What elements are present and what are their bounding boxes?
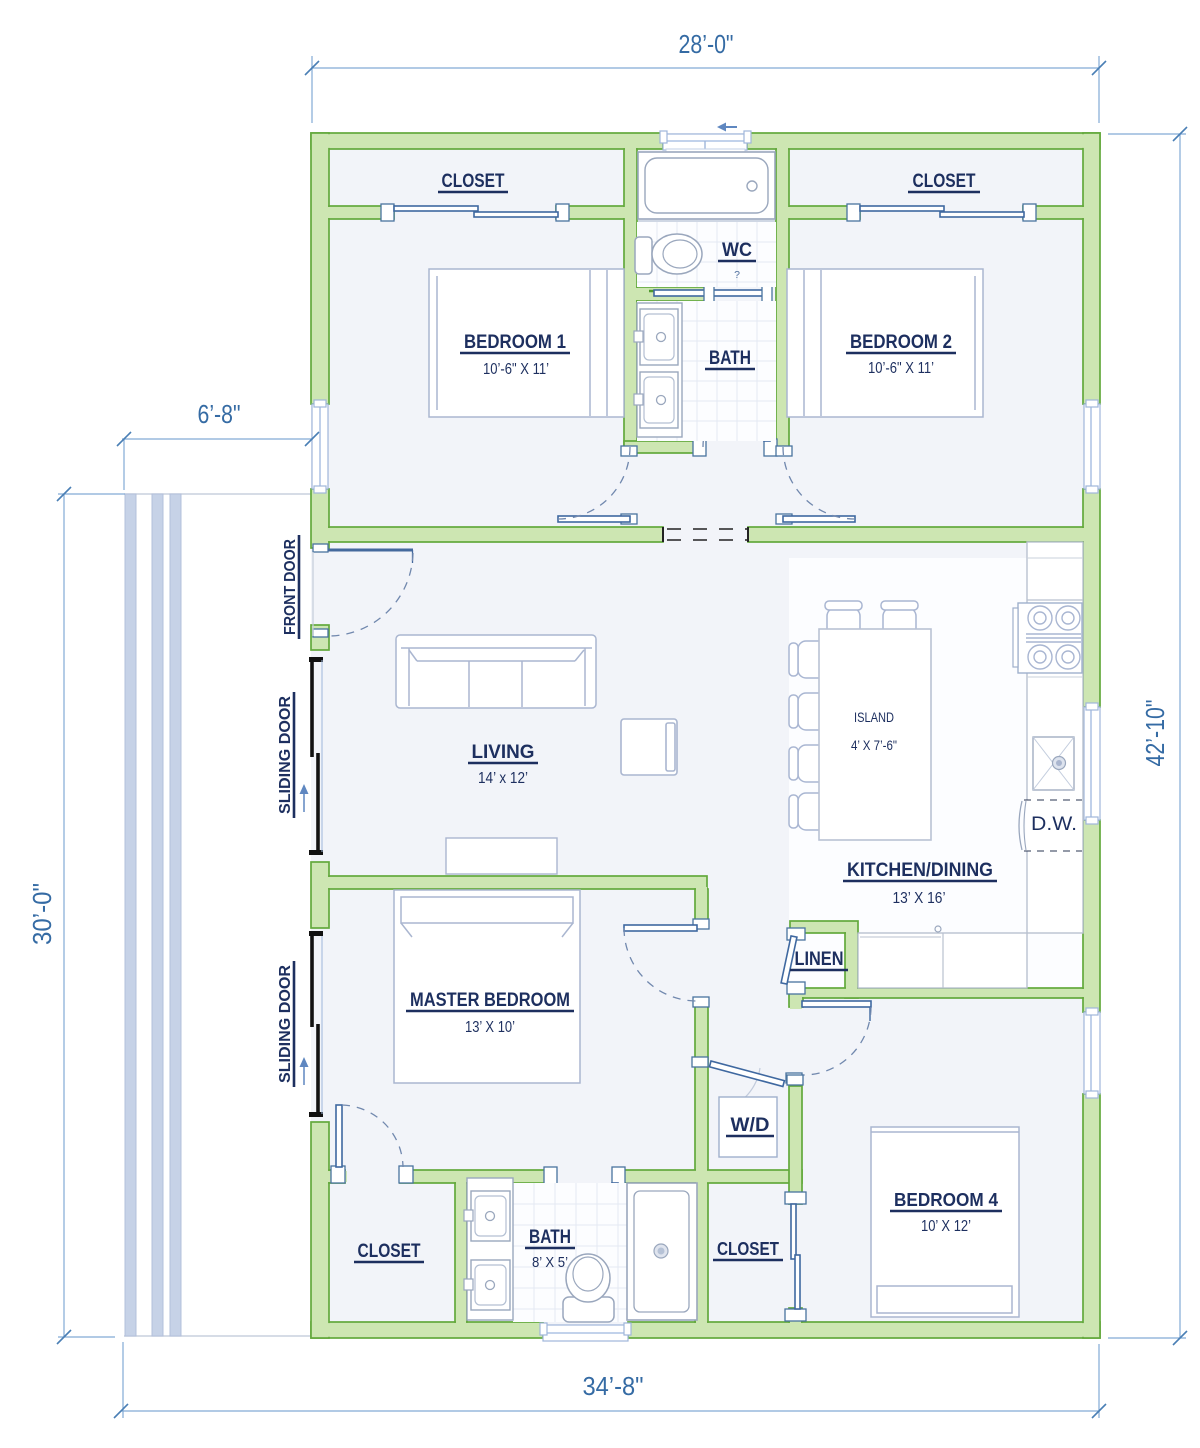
svg-text:10’-6" X 11’: 10’-6" X 11’: [483, 361, 549, 378]
svg-text:LINEN: LINEN: [795, 949, 844, 970]
svg-text:ISLAND: ISLAND: [854, 709, 894, 725]
svg-text:W/D: W/D: [731, 1115, 770, 1136]
svg-text:BEDROOM 2: BEDROOM 2: [850, 332, 952, 353]
svg-text:LIVING: LIVING: [472, 741, 535, 763]
svg-text:CLOSET: CLOSET: [717, 1239, 779, 1259]
svg-text:14’ x 12’: 14’ x 12’: [478, 770, 528, 787]
svg-text:34’-8": 34’-8": [583, 1371, 644, 1401]
svg-text:6’-8": 6’-8": [198, 399, 241, 429]
svg-text:4’ X 7’-6": 4’ X 7’-6": [851, 737, 897, 753]
svg-text:8’ X 5’: 8’ X 5’: [532, 1254, 568, 1271]
svg-text:10’-6" X 11’: 10’-6" X 11’: [868, 360, 934, 377]
svg-text:SLIDING DOOR: SLIDING DOOR: [277, 696, 294, 814]
svg-text:D.W.: D.W.: [1031, 814, 1077, 835]
svg-text:13’ X 16’: 13’ X 16’: [893, 890, 946, 907]
svg-text:?: ?: [734, 269, 740, 281]
svg-text:BATH: BATH: [529, 1226, 571, 1248]
svg-text:13’ X 10’: 13’ X 10’: [465, 1019, 515, 1036]
svg-text:30’-0": 30’-0": [27, 883, 57, 945]
svg-text:BATH: BATH: [709, 347, 751, 369]
svg-text:FRONT DOOR: FRONT DOOR: [282, 539, 299, 635]
svg-text:CLOSET: CLOSET: [442, 171, 505, 192]
svg-text:BEDROOM 1: BEDROOM 1: [464, 332, 566, 353]
svg-text:SLIDING DOOR: SLIDING DOOR: [277, 965, 294, 1083]
svg-text:10’ X 12’: 10’ X 12’: [921, 1218, 971, 1235]
svg-text:WC: WC: [722, 239, 752, 261]
svg-text:BEDROOM 4: BEDROOM 4: [894, 1190, 998, 1210]
svg-text:CLOSET: CLOSET: [358, 1241, 421, 1262]
svg-text:MASTER BEDROOM: MASTER BEDROOM: [410, 990, 570, 1011]
svg-text:CLOSET: CLOSET: [913, 171, 976, 192]
svg-text:KITCHEN/DINING: KITCHEN/DINING: [847, 860, 993, 881]
svg-text:28’-0": 28’-0": [679, 29, 734, 59]
svg-text:42’-10": 42’-10": [1140, 700, 1170, 767]
